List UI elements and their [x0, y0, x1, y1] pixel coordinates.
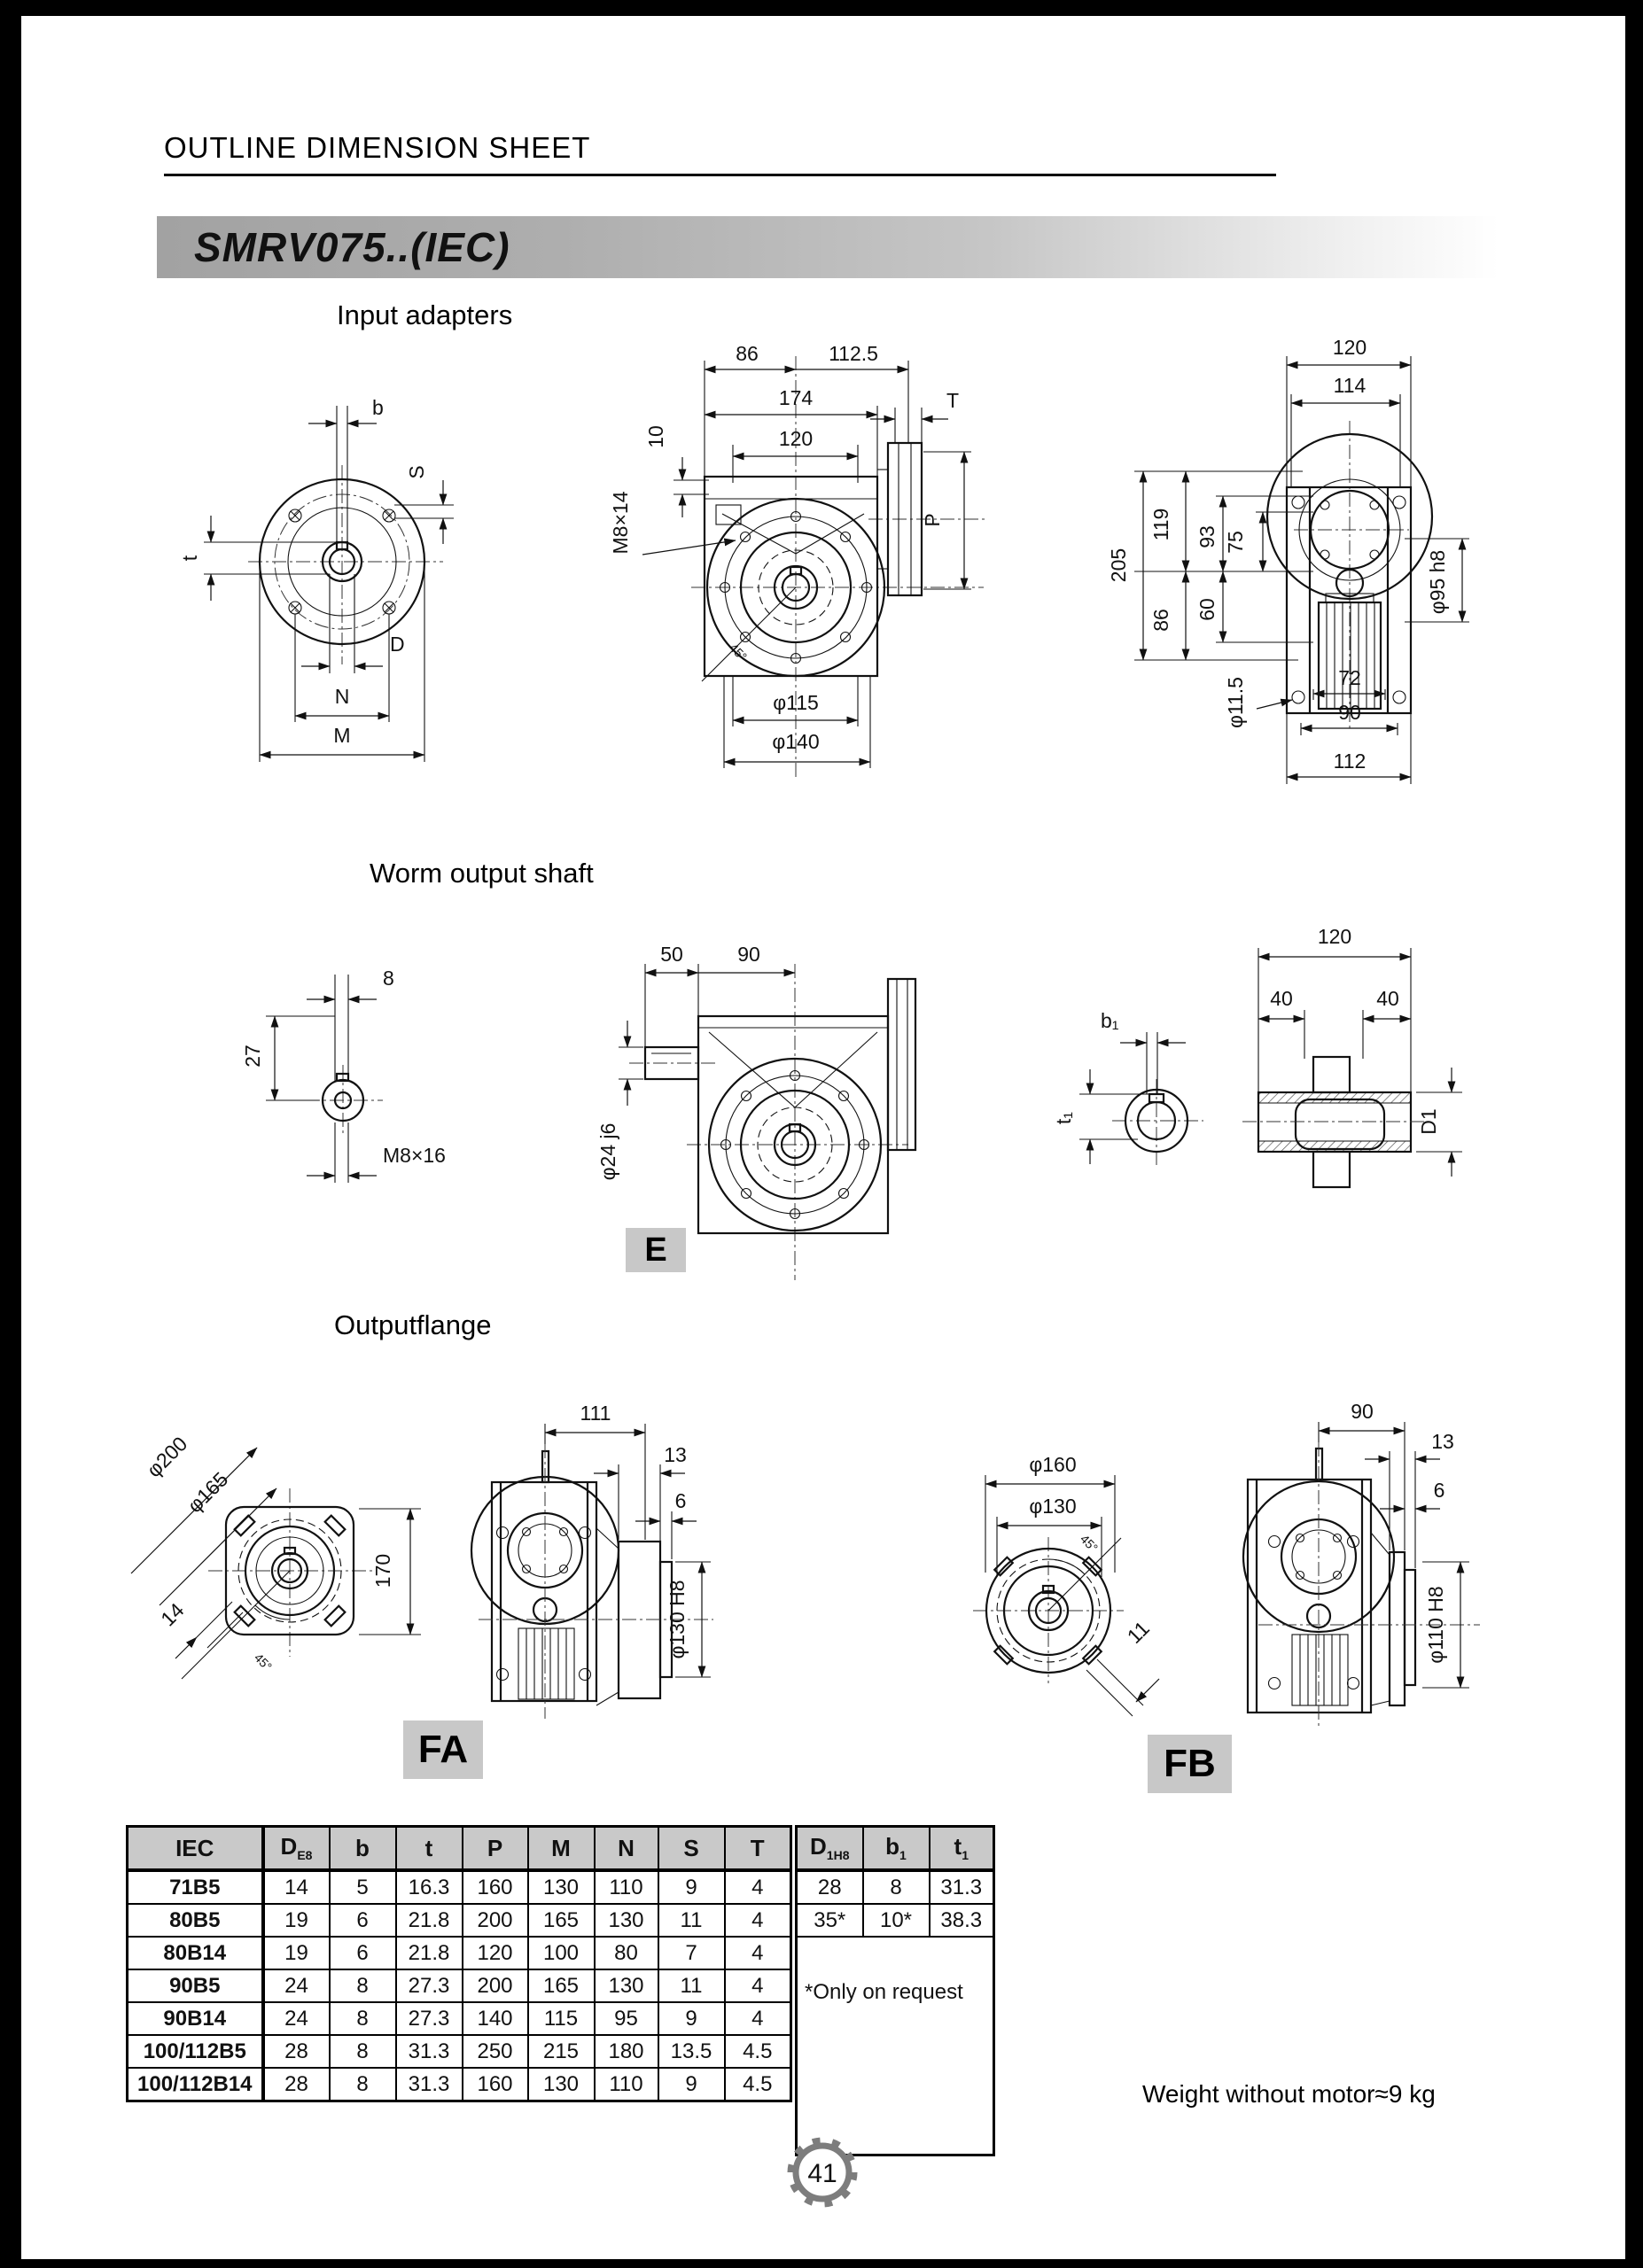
cell: 11 — [658, 1904, 725, 1937]
cell-iec: 90B5 — [128, 1969, 263, 2002]
col-header-t1: t1 — [930, 1827, 994, 1871]
table-row: 100/112B5 28 8 31.3 250 215 180 13.5 4.5 — [128, 2035, 791, 2068]
dim-174-label: 174 — [779, 386, 814, 409]
cell: 80 — [595, 1937, 658, 1969]
model-banner: SMRV075..(IEC) — [157, 216, 1499, 278]
dim-170-label: 170 — [371, 1554, 394, 1588]
cell: 19 — [263, 1937, 330, 1969]
cell: 180 — [595, 2035, 658, 2068]
cell: 8 — [863, 1870, 930, 1904]
page-border-bottom — [0, 2259, 1643, 2268]
cell: 4 — [725, 1904, 791, 1937]
cell: 200 — [463, 1969, 528, 2002]
dimensions: 90 13 6 φ110 H8 — [1319, 1400, 1469, 1688]
dim-8-label: 8 — [383, 967, 394, 990]
cell: 8 — [330, 1969, 396, 2002]
cell: 8 — [330, 2068, 396, 2101]
dim-120-label: 120 — [1333, 336, 1367, 359]
dim-p-label: P — [921, 513, 944, 526]
dim-angle-label: 45° — [252, 1651, 275, 1674]
col-header-de8: DE8 — [263, 1827, 330, 1871]
cell: 4 — [725, 1937, 791, 1969]
page-number-gear: 41 — [782, 2132, 863, 2213]
worm-shaft-end-view-drawing: 8 27 M8×16 — [230, 957, 505, 1196]
dim-6-label: 6 — [675, 1489, 687, 1512]
dim-phi140-label: φ140 — [772, 730, 819, 753]
col-header-s: S — [658, 1827, 725, 1871]
dim-90-label: 90 — [1351, 1400, 1374, 1423]
dim-86-label: 86 — [736, 342, 759, 365]
page-number: 41 — [807, 2159, 837, 2188]
dim-13-label: 13 — [664, 1443, 687, 1466]
cell: 4.5 — [725, 2068, 791, 2101]
dim-t-flange-label: T — [946, 389, 959, 412]
flange-geometry — [248, 406, 443, 664]
dim-90-label: 90 — [737, 943, 760, 966]
cell: 28 — [797, 1870, 863, 1904]
cell: 13.5 — [658, 2035, 725, 2068]
cell: 8 — [330, 2002, 396, 2035]
hollow-shaft-dimension-table: D1H8 b1 t1 28 8 31.3 35* 10* 38.3 *Only … — [795, 1825, 995, 2156]
dimensions: 111 13 6 φ130 H8 — [545, 1402, 711, 1677]
cell: 165 — [528, 1969, 595, 2002]
page-title: OUTLINE DIMENSION SHEET — [164, 131, 590, 165]
input-adapter-back-view-drawing: 120 114 205 119 93 75 86 60 — [1090, 337, 1524, 788]
cell: 24 — [263, 2002, 330, 2035]
cell: 16.3 — [396, 1870, 463, 1904]
outline-dimension-sheet-page: OUTLINE DIMENSION SHEET SMRV075..(IEC) I… — [0, 0, 1643, 2268]
cell: 21.8 — [396, 1904, 463, 1937]
cell: 165 — [528, 1904, 595, 1937]
col-header-b: b — [330, 1827, 396, 1871]
cell: 11 — [658, 1969, 725, 2002]
table-row: 28 8 31.3 — [797, 1870, 994, 1904]
input-adapter-side-view-drawing: 45° 86 112.5 174 120 T 10 M8× — [603, 337, 1001, 788]
dim-m-label: M — [333, 724, 350, 747]
dim-111-label: 111 — [580, 1402, 611, 1425]
page-border-left — [0, 0, 21, 2268]
dim-n-label: N — [335, 685, 350, 708]
view-label-e: E — [626, 1228, 686, 1272]
dim-90-label: 90 — [1338, 701, 1361, 724]
cell: 7 — [658, 1937, 725, 1969]
dim-72-label: 72 — [1338, 666, 1361, 689]
cell: 24 — [263, 1969, 330, 2002]
input-adapter-front-view-drawing: b S t D N M — [177, 381, 479, 780]
col-header-t: t — [396, 1827, 463, 1871]
col-header-b1: b1 — [863, 1827, 930, 1871]
cell: 19 — [263, 1904, 330, 1937]
cell: 5 — [330, 1870, 396, 1904]
cell-iec: 80B14 — [128, 1937, 263, 1969]
flange-fb-front-view-drawing: 45° φ160 φ130 11 — [931, 1417, 1241, 1719]
table-row: 100/112B14 28 8 31.3 160 130 110 9 4.5 — [128, 2068, 791, 2101]
dim-112-5-label: 112.5 — [829, 342, 878, 365]
dim-phi115-label: φ115 — [773, 691, 819, 714]
dim-60-label: 60 — [1195, 598, 1219, 621]
cell: 9 — [658, 2002, 725, 2035]
dim-27-label: 27 — [241, 1045, 264, 1068]
page-border-right — [1625, 0, 1643, 2268]
cell-iec: 100/112B5 — [128, 2035, 263, 2068]
dim-119-label: 119 — [1149, 509, 1172, 541]
cell: 28 — [263, 2035, 330, 2068]
dim-phi160-label: φ160 — [1029, 1453, 1076, 1476]
dim-14-label: 14 — [156, 1598, 189, 1631]
cell: 250 — [463, 2035, 528, 2068]
cell: 110 — [595, 2068, 658, 2101]
dim-114-label: 114 — [1334, 374, 1367, 397]
dim-120-label: 120 — [1318, 925, 1351, 948]
gearbox-geometry: 45° — [691, 356, 985, 780]
dim-phi110h8-label: φ110 H8 — [1424, 1586, 1447, 1663]
dim-phi95h8-label: φ95 h8 — [1426, 550, 1449, 614]
cell-iec: 80B5 — [128, 1904, 263, 1937]
dim-13-label: 13 — [1431, 1430, 1454, 1453]
dim-phi11-5-label: φ11.5 — [1224, 677, 1247, 728]
dim-phi24j6-label: φ24 j6 — [596, 1123, 619, 1181]
dim-s-label: S — [405, 465, 428, 478]
dim-86-label: 86 — [1149, 609, 1172, 632]
table-header-row: D1H8 b1 t1 — [797, 1827, 994, 1871]
dimensions: 120 114 205 119 93 75 86 60 — [1107, 336, 1469, 784]
dimensions: 86 112.5 174 120 T 10 M8×14 P — [609, 342, 971, 768]
cell: 140 — [463, 2002, 528, 2035]
cell: 120 — [463, 1937, 528, 1969]
dim-40a-label: 40 — [1270, 987, 1293, 1010]
dim-d1-label: D1 — [1417, 1108, 1440, 1134]
cell-iec: 90B14 — [128, 2002, 263, 2035]
view-label-fb: FB — [1148, 1735, 1232, 1793]
cell: 200 — [463, 1904, 528, 1937]
flange-geometry: 45° — [182, 1488, 374, 1679]
section-title-input-adapters: Input adapters — [337, 299, 512, 331]
dim-phi165-label: φ165 — [183, 1467, 232, 1517]
cell: 130 — [595, 1969, 658, 2002]
dimensions: b S t D N M — [178, 396, 454, 762]
cell: 27.3 — [396, 2002, 463, 2035]
dim-angle-label: 45° — [1078, 1532, 1101, 1555]
cell: 9 — [658, 2068, 725, 2101]
table-row: 71B5 14 5 16.3 160 130 110 9 4 — [128, 1870, 791, 1904]
dim-phi130h8-label: φ130 H8 — [666, 1580, 689, 1658]
flange-fb-side-view-drawing: 90 13 6 φ110 H8 — [1241, 1400, 1524, 1736]
cell: 130 — [528, 1870, 595, 1904]
table-header-row: IEC DE8 b t P M N S T — [128, 1827, 791, 1871]
dim-112-label: 112 — [1334, 750, 1367, 773]
cell: 215 — [528, 2035, 595, 2068]
dim-40b-label: 40 — [1376, 987, 1399, 1010]
dim-120-label: 120 — [779, 427, 813, 450]
view-label-fa: FA — [403, 1720, 483, 1779]
dim-75-label: 75 — [1224, 531, 1247, 554]
cell: 95 — [595, 2002, 658, 2035]
cell: 115 — [528, 2002, 595, 2035]
table-row: 35* 10* 38.3 — [797, 1904, 994, 1937]
dim-phi130-label: φ130 — [1029, 1495, 1076, 1518]
cell: 14 — [263, 1870, 330, 1904]
title-underline — [164, 174, 1276, 176]
table-note: *Only on request — [797, 1937, 994, 2155]
section-title-worm-output-shaft: Worm output shaft — [370, 858, 594, 889]
cell: 4 — [725, 1870, 791, 1904]
dim-b1-label: b₁ — [1101, 1009, 1119, 1032]
dim-11-label: 11 — [1123, 1617, 1154, 1648]
cell-iec: 71B5 — [128, 1870, 263, 1904]
cell: 160 — [463, 1870, 528, 1904]
cell: 31.3 — [930, 1870, 994, 1904]
cell: 8 — [330, 2035, 396, 2068]
cell: 100 — [528, 1937, 595, 1969]
dim-b-label: b — [372, 396, 384, 419]
dim-50-label: 50 — [660, 943, 683, 966]
cell: 6 — [330, 1904, 396, 1937]
col-header-p: P — [463, 1827, 528, 1871]
shaft-geometry — [306, 975, 383, 1183]
cell: 31.3 — [396, 2068, 463, 2101]
table-row: 90B14 24 8 27.3 140 115 95 9 4 — [128, 2002, 791, 2035]
cell: 38.3 — [930, 1904, 994, 1937]
cell: 35* — [797, 1904, 863, 1937]
cell: 28 — [263, 2068, 330, 2101]
dimensions: φ200 φ165 170 14 — [131, 1432, 421, 1658]
hollow-shaft-drawing: b₁ t₁ 120 40 40 — [1046, 921, 1507, 1223]
col-header-n: N — [595, 1827, 658, 1871]
dim-m8x16-label: M8×16 — [383, 1144, 446, 1167]
cell: 31.3 — [396, 2035, 463, 2068]
cell: 9 — [658, 1870, 725, 1904]
flange-fa-front-view-drawing: 45° φ200 φ165 170 14 — [97, 1400, 461, 1736]
cell: 21.8 — [396, 1937, 463, 1969]
hollow-shaft-section: 120 40 40 D1 — [1242, 925, 1462, 1187]
col-header-t2: T — [725, 1827, 791, 1871]
table-row: 90B5 24 8 27.3 200 165 130 11 4 — [128, 1969, 791, 2002]
dim-m8x14-label: M8×14 — [609, 491, 632, 554]
flange-fa-side-view-drawing: 111 13 6 φ130 H8 — [443, 1400, 727, 1736]
section-title-outputflange: Outputflange — [334, 1309, 492, 1341]
page-border-top — [0, 0, 1643, 16]
cell: 130 — [528, 2068, 595, 2101]
dim-d-label: D — [390, 633, 405, 656]
weight-note: Weight without motor≈9 kg — [1142, 2080, 1436, 2109]
dim-6-label: 6 — [1434, 1479, 1445, 1502]
dim-phi200-label: φ200 — [142, 1432, 191, 1481]
cell: 27.3 — [396, 1969, 463, 2002]
col-header-iec: IEC — [128, 1827, 263, 1871]
svg-defs — [0, 0, 2, 2]
dim-93-label: 93 — [1195, 525, 1219, 548]
cell: 4 — [725, 1969, 791, 2002]
cell: 110 — [595, 1870, 658, 1904]
table-note-row: *Only on request — [797, 1937, 994, 2155]
cell-iec: 100/112B14 — [128, 2068, 263, 2101]
table-row: 80B14 19 6 21.8 120 100 80 7 4 — [128, 1937, 791, 1969]
dim-205-label: 205 — [1107, 548, 1130, 582]
cell: 4 — [725, 2002, 791, 2035]
cell: 160 — [463, 2068, 528, 2101]
cell: 10* — [863, 1904, 930, 1937]
cell: 6 — [330, 1937, 396, 1969]
col-header-m: M — [528, 1827, 595, 1871]
iec-dimension-table: IEC DE8 b t P M N S T 71B5 14 5 16.3 160… — [126, 1825, 792, 2102]
dim-t-label: t — [178, 555, 201, 561]
bore-end-view: b₁ t₁ — [1052, 1009, 1203, 1165]
dim-t1-label: t₁ — [1052, 1112, 1075, 1124]
cell: 130 — [595, 1904, 658, 1937]
col-header-d1h8: D1H8 — [797, 1827, 863, 1871]
table-row: 80B5 19 6 21.8 200 165 130 11 4 — [128, 1904, 791, 1937]
cell: 4.5 — [725, 2035, 791, 2068]
dim-10-label: 10 — [644, 425, 667, 448]
